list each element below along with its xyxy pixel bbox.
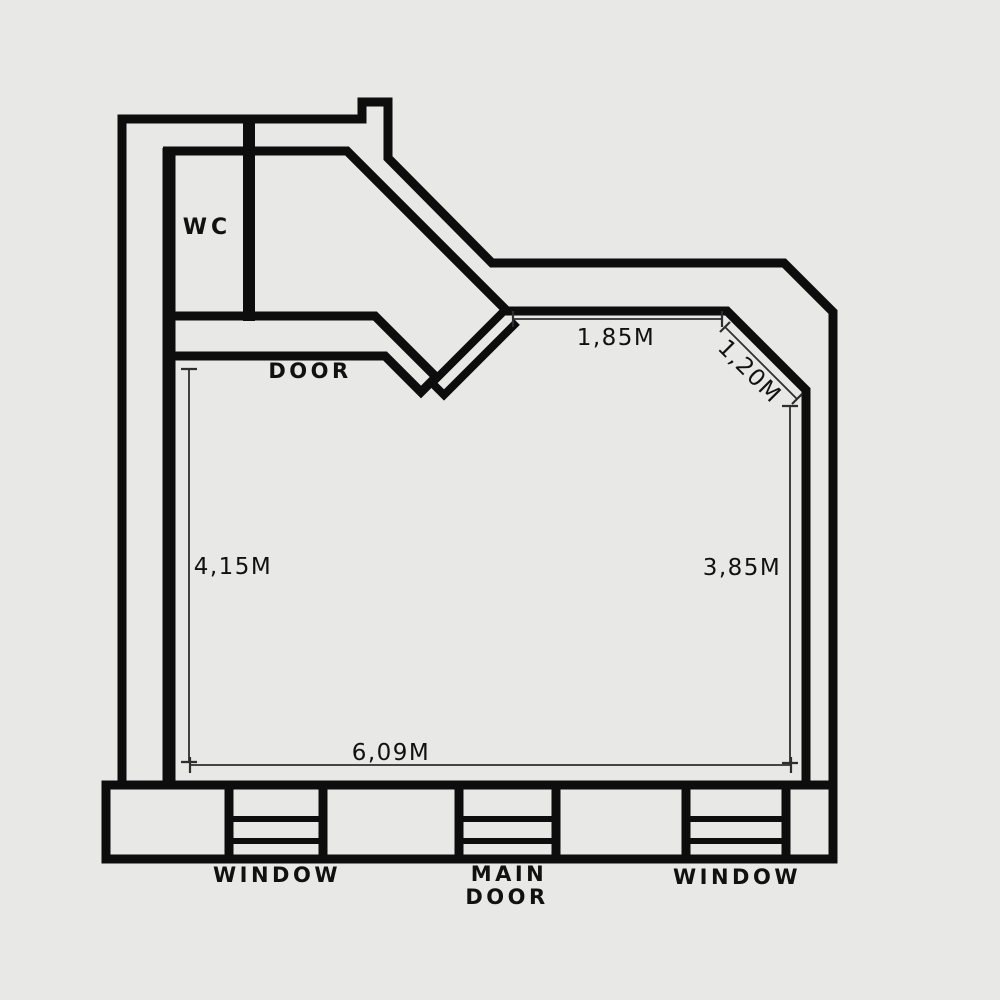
dim-text-left: 4,15M — [194, 554, 273, 580]
wc-room-label: WC — [183, 215, 231, 240]
window-right-label: WINDOW — [673, 865, 801, 889]
door-label: DOOR — [268, 359, 351, 383]
plan-background — [0, 0, 1000, 1000]
main-door-label-line2: DOOR — [465, 885, 548, 909]
window-left-label: WINDOW — [213, 863, 341, 887]
dim-text-right: 3,85M — [703, 555, 782, 581]
dim-text-top: 1,85M — [577, 325, 656, 351]
main-door-label-line1: MAIN — [471, 862, 548, 886]
floor-plan-canvas: WC DOOR 1,85M 1,20M 4,15M 3,85M 6,09M WI… — [0, 0, 1000, 1000]
dim-text-bottom: 6,09M — [352, 740, 431, 766]
floor-plan-drawing: WC DOOR 1,85M 1,20M 4,15M 3,85M 6,09M WI… — [0, 0, 1000, 1000]
